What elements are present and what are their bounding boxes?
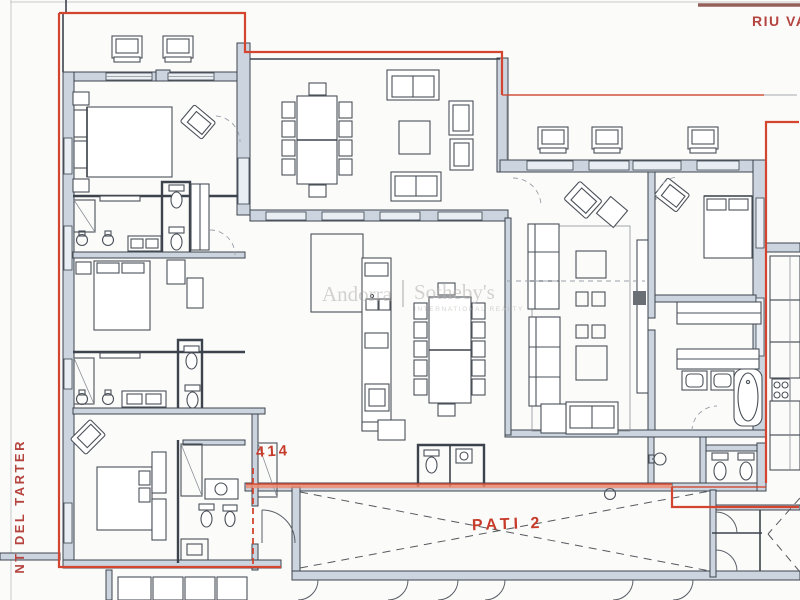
chair <box>309 83 326 95</box>
door-arc <box>716 550 737 571</box>
wardrobe <box>153 577 183 600</box>
lounge-chair <box>163 36 193 62</box>
side-table <box>576 292 588 306</box>
lounge-chair <box>592 127 622 153</box>
wardrobe <box>217 577 247 600</box>
shower-tray <box>181 539 208 560</box>
patio-label: PATI 2 <box>472 515 544 535</box>
handwritten-note: 414 <box>256 442 291 461</box>
nightstand <box>76 262 91 274</box>
sofa <box>529 317 560 406</box>
lower-unit <box>118 512 737 600</box>
toilet-icon <box>169 185 184 208</box>
toilet-icon <box>184 346 199 369</box>
pillow <box>139 471 150 485</box>
entry-hall <box>258 420 472 543</box>
shelf <box>100 196 140 201</box>
chair <box>339 102 352 118</box>
armchair <box>180 105 216 140</box>
pillow <box>139 488 150 502</box>
lounge-chair <box>112 36 142 62</box>
wc-room <box>712 453 754 480</box>
chair <box>309 185 326 197</box>
watermark: Andorra Sotheby's INTERNATIONAL REALTY <box>322 280 524 313</box>
door-arc <box>716 512 737 533</box>
shelf <box>100 353 140 358</box>
bathroom-master <box>677 302 762 431</box>
door-arc <box>438 580 458 600</box>
wardrobe <box>152 499 166 540</box>
chair <box>414 322 427 338</box>
armchair <box>654 178 690 213</box>
chair <box>414 341 427 357</box>
toilet-icon <box>424 450 439 473</box>
wardrobe <box>118 577 151 600</box>
cabinet <box>378 420 405 440</box>
fireplace-icon <box>633 291 646 305</box>
vanity <box>122 391 166 407</box>
pillow <box>729 199 748 210</box>
sink-icon <box>654 453 666 465</box>
bathroom-c <box>181 444 238 560</box>
lounge-chair <box>538 127 568 153</box>
chair <box>282 102 295 118</box>
tv-bench <box>637 240 648 393</box>
watermark-divider <box>402 280 404 307</box>
lounge-chair <box>688 127 718 153</box>
chair <box>282 121 295 137</box>
chair <box>282 159 295 175</box>
door-arc <box>613 580 633 600</box>
bidet-icon <box>169 227 184 250</box>
coffee-table <box>576 251 606 278</box>
chair <box>472 379 485 395</box>
bidet-icon <box>185 385 200 408</box>
pillow <box>74 110 87 137</box>
chair <box>438 404 455 416</box>
chair <box>339 140 352 156</box>
floor-plan: RIU VA NT DEL TARTER 414 PATI 2 Andorra … <box>0 0 800 600</box>
bedroom-1 <box>73 92 240 192</box>
watermark-brand-left: Andorra <box>322 280 392 307</box>
coffee-table <box>576 346 607 380</box>
bathroom-a <box>74 184 209 251</box>
chair <box>282 140 295 156</box>
pillow <box>97 263 119 273</box>
vanity <box>128 236 161 251</box>
toilet-icon <box>199 504 214 527</box>
living-room <box>507 178 648 434</box>
kitchen <box>311 234 397 431</box>
door-arc <box>388 580 408 600</box>
street-label-riu: RIU VA <box>752 13 800 29</box>
pillow <box>707 199 726 210</box>
nightstand <box>73 179 89 192</box>
door-arc <box>485 580 505 600</box>
wardrobe <box>167 260 185 284</box>
neighbor-kitchen <box>770 256 800 470</box>
door-arc <box>262 510 295 543</box>
patio <box>300 489 800 573</box>
nightstand <box>73 92 89 105</box>
sunroom-lounge <box>387 70 473 201</box>
toilet-icon <box>738 453 754 480</box>
sunroom-dining <box>282 83 352 197</box>
watermark-tagline: INTERNATIONAL REALTY <box>414 306 524 313</box>
door-arc <box>673 580 693 600</box>
bathroom-b <box>74 346 200 408</box>
chair <box>414 360 427 376</box>
pillow <box>74 141 87 168</box>
chair <box>472 341 485 357</box>
pillow <box>122 263 144 273</box>
coffee-table <box>399 121 430 154</box>
chair <box>339 159 352 175</box>
bidet-icon <box>223 505 237 527</box>
chair <box>414 379 427 395</box>
sofa <box>528 224 559 309</box>
chair <box>472 360 485 376</box>
wardrobe <box>187 278 203 308</box>
toilet-icon <box>712 453 728 480</box>
side-table <box>576 325 588 338</box>
bedroom-3 <box>70 419 166 540</box>
vanity <box>205 479 238 499</box>
wardrobe <box>185 577 215 600</box>
street-label-tarter: NT DEL TARTER <box>12 439 27 574</box>
wardrobe <box>152 452 166 493</box>
bedroom-4 <box>654 177 752 258</box>
side-table <box>592 325 605 338</box>
sink-icon <box>456 449 472 463</box>
armchair <box>70 419 105 454</box>
side-table <box>592 292 605 306</box>
door-arc <box>298 580 318 600</box>
bed <box>87 107 172 177</box>
chair <box>472 322 485 338</box>
chair <box>339 121 352 137</box>
watermark-brand-right: Sotheby's <box>414 280 524 305</box>
sofa-chaise <box>541 404 566 433</box>
